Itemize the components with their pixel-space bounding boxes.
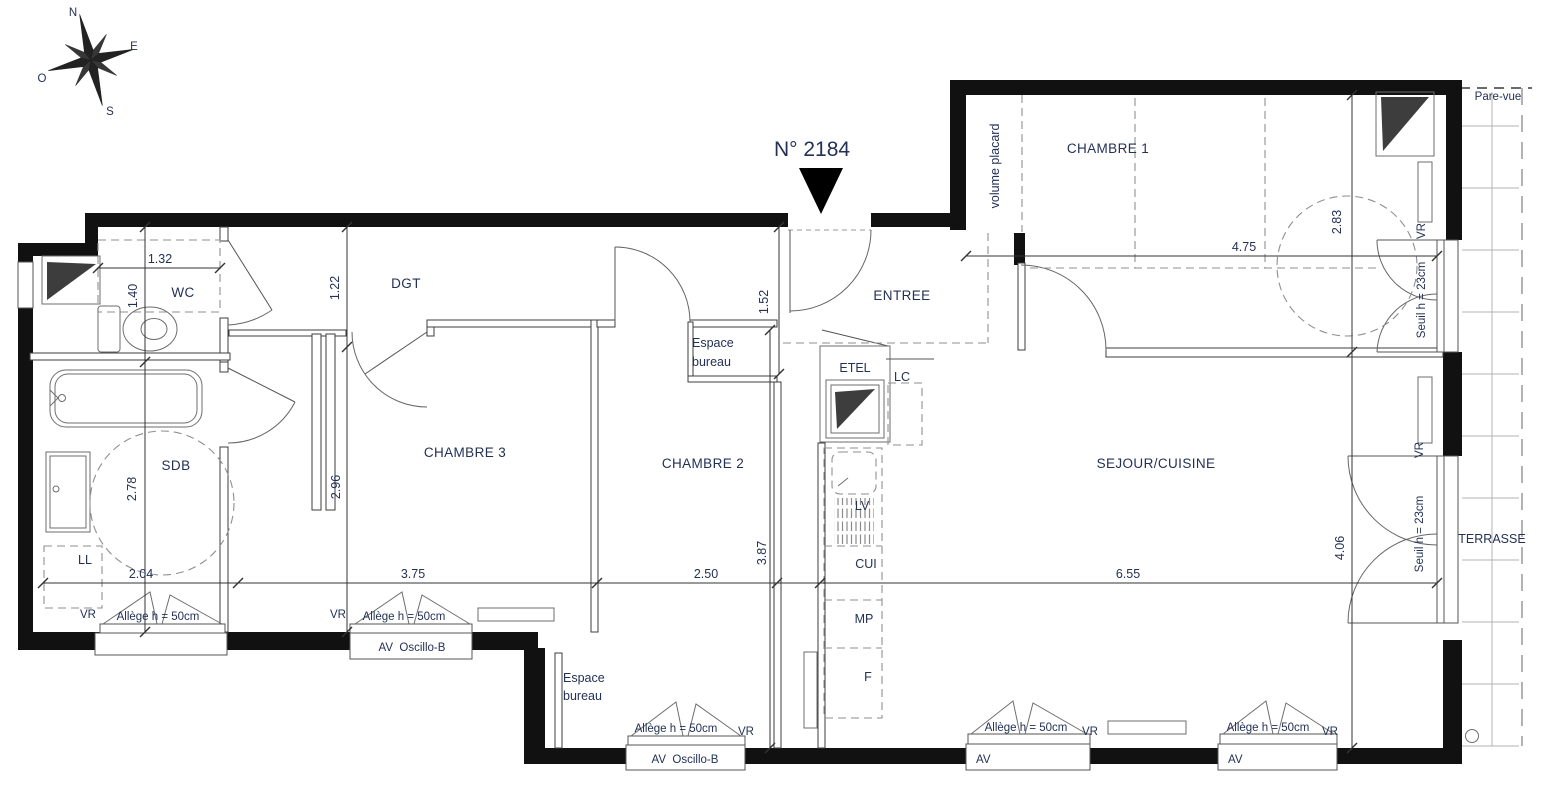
sejour-label: SEJOUR/CUISINE (1097, 456, 1216, 471)
wc-label: WC (171, 285, 194, 300)
allege-label: Allège h = 50cm (363, 611, 446, 623)
terrasse-label: TERRASSE (1458, 532, 1525, 546)
door-jamb (1014, 233, 1025, 265)
espace-bureau2-label: Espace (563, 671, 605, 685)
dim-chambre2-width: 2.50 (694, 567, 718, 581)
wall-segment (18, 632, 100, 650)
sdb-turning-circle (90, 431, 234, 575)
pare-vue-label: Pare-vue (1475, 91, 1522, 103)
compass-south-label: S (106, 106, 114, 118)
dim-chambre1-depth: 2.83 (1330, 210, 1344, 234)
vr-label: VR (80, 609, 96, 621)
entrance-arrow-icon (799, 168, 843, 214)
dim-chambre2-depth: 3.87 (755, 541, 769, 565)
vr-label: VR (1416, 223, 1428, 239)
chambre2-label: CHAMBRE 2 (662, 456, 744, 471)
exterior-walls (18, 80, 1462, 764)
radiator (478, 608, 554, 621)
wc-door (228, 240, 272, 325)
dim-sdb-width: 2.04 (129, 567, 153, 581)
dim-chambre3-width: 3.75 (401, 567, 425, 581)
wc-window (18, 262, 33, 308)
compass-rose: N E O S (37, 4, 145, 118)
dim-entree-width: 1.52 (757, 290, 771, 314)
av-label: AV (1228, 754, 1243, 766)
wall-segment (950, 80, 966, 230)
chambre1-label: CHAMBRE 1 (1067, 141, 1149, 156)
etel-door (822, 330, 888, 346)
wall-segment (950, 80, 1462, 95)
seuil-label: Seuil h = 23cm (1414, 496, 1426, 572)
sejour-window-1 (968, 734, 1090, 744)
av-label: AV (976, 754, 991, 766)
chambre1-window-sash-icon (1381, 97, 1429, 151)
compass-east-label: E (130, 41, 138, 53)
allege-label: Allège h = 50cm (635, 723, 718, 735)
wc-window-sash-icon (47, 262, 96, 300)
allege-label: Allège h = 50cm (985, 722, 1068, 734)
wall-segment (1443, 352, 1462, 456)
dim-wc-depth: 1.40 (126, 284, 140, 308)
chambre2-door (615, 247, 690, 322)
chambre1-layout (1022, 95, 1417, 336)
espace-bureau2-label2: bureau (563, 689, 602, 703)
entree-label: ENTREE (873, 288, 930, 303)
bureau-window (628, 736, 745, 745)
dgt-label: DGT (391, 276, 421, 291)
lv-label: LV (855, 499, 870, 513)
wall-segment (1337, 748, 1462, 764)
chambre1-turning-circle (1277, 196, 1417, 336)
f-label: F (864, 670, 872, 684)
chambre3-window (350, 624, 472, 633)
etel-label: ETEL (839, 361, 870, 375)
chambre3-label: CHAMBRE 3 (424, 445, 506, 460)
espace-bureau1-label2: bureau (692, 355, 731, 369)
vr-label: VR (1082, 726, 1098, 738)
unit-number-label: N° 2184 (774, 138, 850, 161)
vr-label: VR (738, 726, 754, 738)
allege-label: Allège h = 50cm (1227, 722, 1310, 734)
terrace: Pare-vue TERRASSE (1458, 88, 1532, 746)
sejour-terrace-door-glass (1437, 456, 1444, 623)
sdb-window-sill (95, 633, 227, 655)
sdb-window (100, 624, 225, 633)
sdb-door (228, 368, 295, 443)
chambre1-terrace-doors (1377, 240, 1437, 352)
dim-sejour-width: 6.55 (1116, 567, 1140, 581)
chambre3-closet (312, 334, 321, 510)
volume-placard-label: volume placard (988, 124, 1002, 209)
wall-segment (18, 243, 33, 262)
entry-door (788, 230, 871, 313)
radiator (1108, 721, 1186, 734)
window-annotations: VR Allège h = 50cm VR Allège h = 50cm AV… (80, 223, 1428, 766)
wall-segment (1446, 80, 1462, 240)
dimension-labels: 1.32 1.40 1.22 1.52 2.78 2.96 2.04 3.75 … (125, 210, 1347, 581)
radiator (1418, 377, 1432, 443)
sejour-terrace-sill (1444, 456, 1458, 623)
chambre1-terrace-door-glass (1437, 240, 1444, 352)
wall-segment (524, 648, 545, 764)
floor-plan-page: N E O S N° 2184 Pare-vue TERRASSE (0, 0, 1545, 800)
wall-segment (85, 227, 98, 245)
washer-zone (44, 546, 102, 608)
lc-zone (888, 383, 922, 445)
wall-segment (871, 213, 962, 227)
dim-sdb-depth: 2.78 (125, 477, 139, 501)
av-oscillo-label: AV Oscillo-B (652, 754, 719, 766)
dimension-lines (38, 90, 1442, 753)
wall-segment (545, 748, 628, 764)
wall-segment (1443, 640, 1462, 764)
chambre1-terrace-sill (1444, 240, 1458, 352)
espace-bureau1-label: Espace (692, 336, 734, 350)
compass-west-label: O (38, 73, 47, 85)
wall-segment (745, 748, 968, 764)
unit-marker: N° 2184 (774, 138, 850, 214)
dim-chambre1-width: 4.75 (1232, 240, 1256, 254)
terrace-drain-icon (1466, 730, 1479, 743)
vr-label: VR (330, 609, 346, 621)
toilet-icon (98, 306, 177, 352)
cui-label: CUI (855, 557, 877, 571)
vr-label: VR (1322, 726, 1338, 738)
wall-segment (225, 632, 350, 650)
dim-sejour-depth: 4.06 (1333, 536, 1347, 560)
ll-label: LL (78, 553, 92, 567)
radiator (804, 652, 817, 728)
radiator (1418, 162, 1432, 222)
wall-segment (472, 632, 538, 650)
interior-partitions (30, 227, 1443, 748)
compass-north-label: N (69, 7, 77, 19)
chambre3-door (352, 332, 427, 407)
wall-segment (1090, 748, 1220, 764)
wc-zone (98, 240, 220, 312)
kitchen-sink-icon (832, 452, 876, 494)
vanity-sink-icon (46, 452, 90, 532)
dim-wc-width: 1.32 (148, 252, 172, 266)
seuil-label: Seuil h = 23cm (1416, 262, 1428, 338)
dim-chambre3-depth: 2.96 (329, 475, 343, 499)
sejour-window-2 (1220, 734, 1337, 744)
av-oscillo-label: AV Oscillo-B (379, 642, 446, 654)
windows (18, 92, 1458, 770)
allege-label: Allège h = 50cm (117, 611, 200, 623)
wall-segment (85, 213, 788, 227)
lc-label: LC (894, 370, 910, 384)
sdb-label: SDB (162, 458, 191, 473)
vr-label: VR (1414, 442, 1426, 458)
floor-plan-drawing: N E O S N° 2184 Pare-vue TERRASSE (0, 0, 1545, 800)
chambre1-door (1018, 263, 1106, 350)
mp-label: MP (855, 612, 874, 626)
bathtub-icon (50, 370, 202, 427)
dim-dgt-depth: 1.22 (328, 276, 342, 300)
labels: CHAMBRE 1 WC DGT ENTREE CHAMBRE 3 CHAMBR… (78, 124, 1215, 703)
